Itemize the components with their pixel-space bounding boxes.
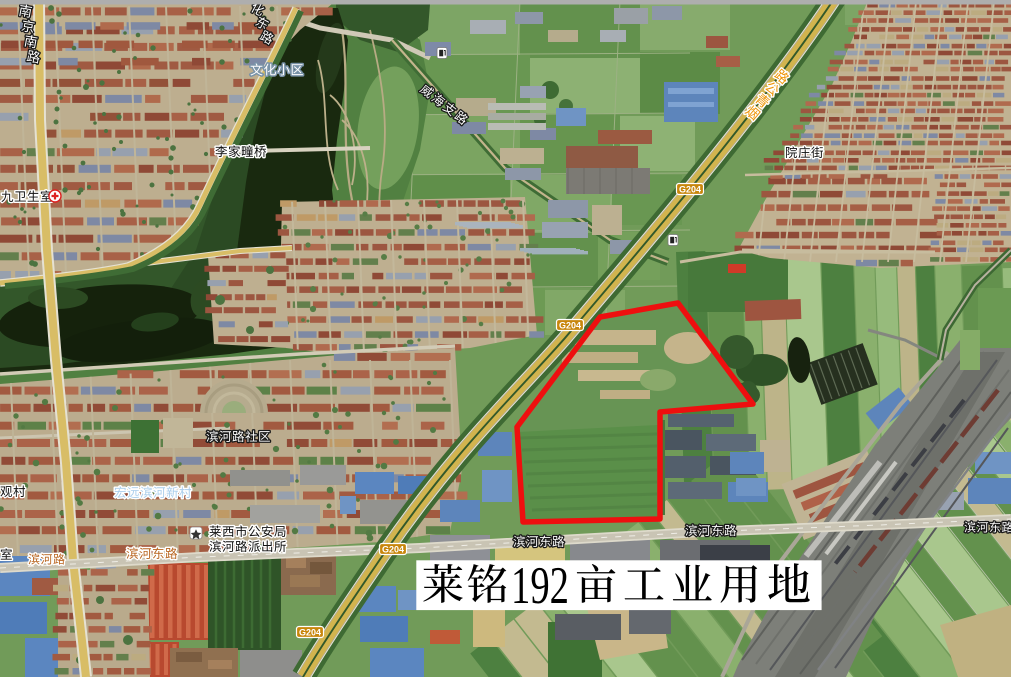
svg-text:G204: G204 (679, 184, 701, 194)
svg-text:G204: G204 (382, 544, 404, 554)
svg-text:192: 192 (511, 557, 569, 615)
svg-text:G204: G204 (299, 627, 321, 637)
svg-text:G204: G204 (559, 320, 581, 330)
